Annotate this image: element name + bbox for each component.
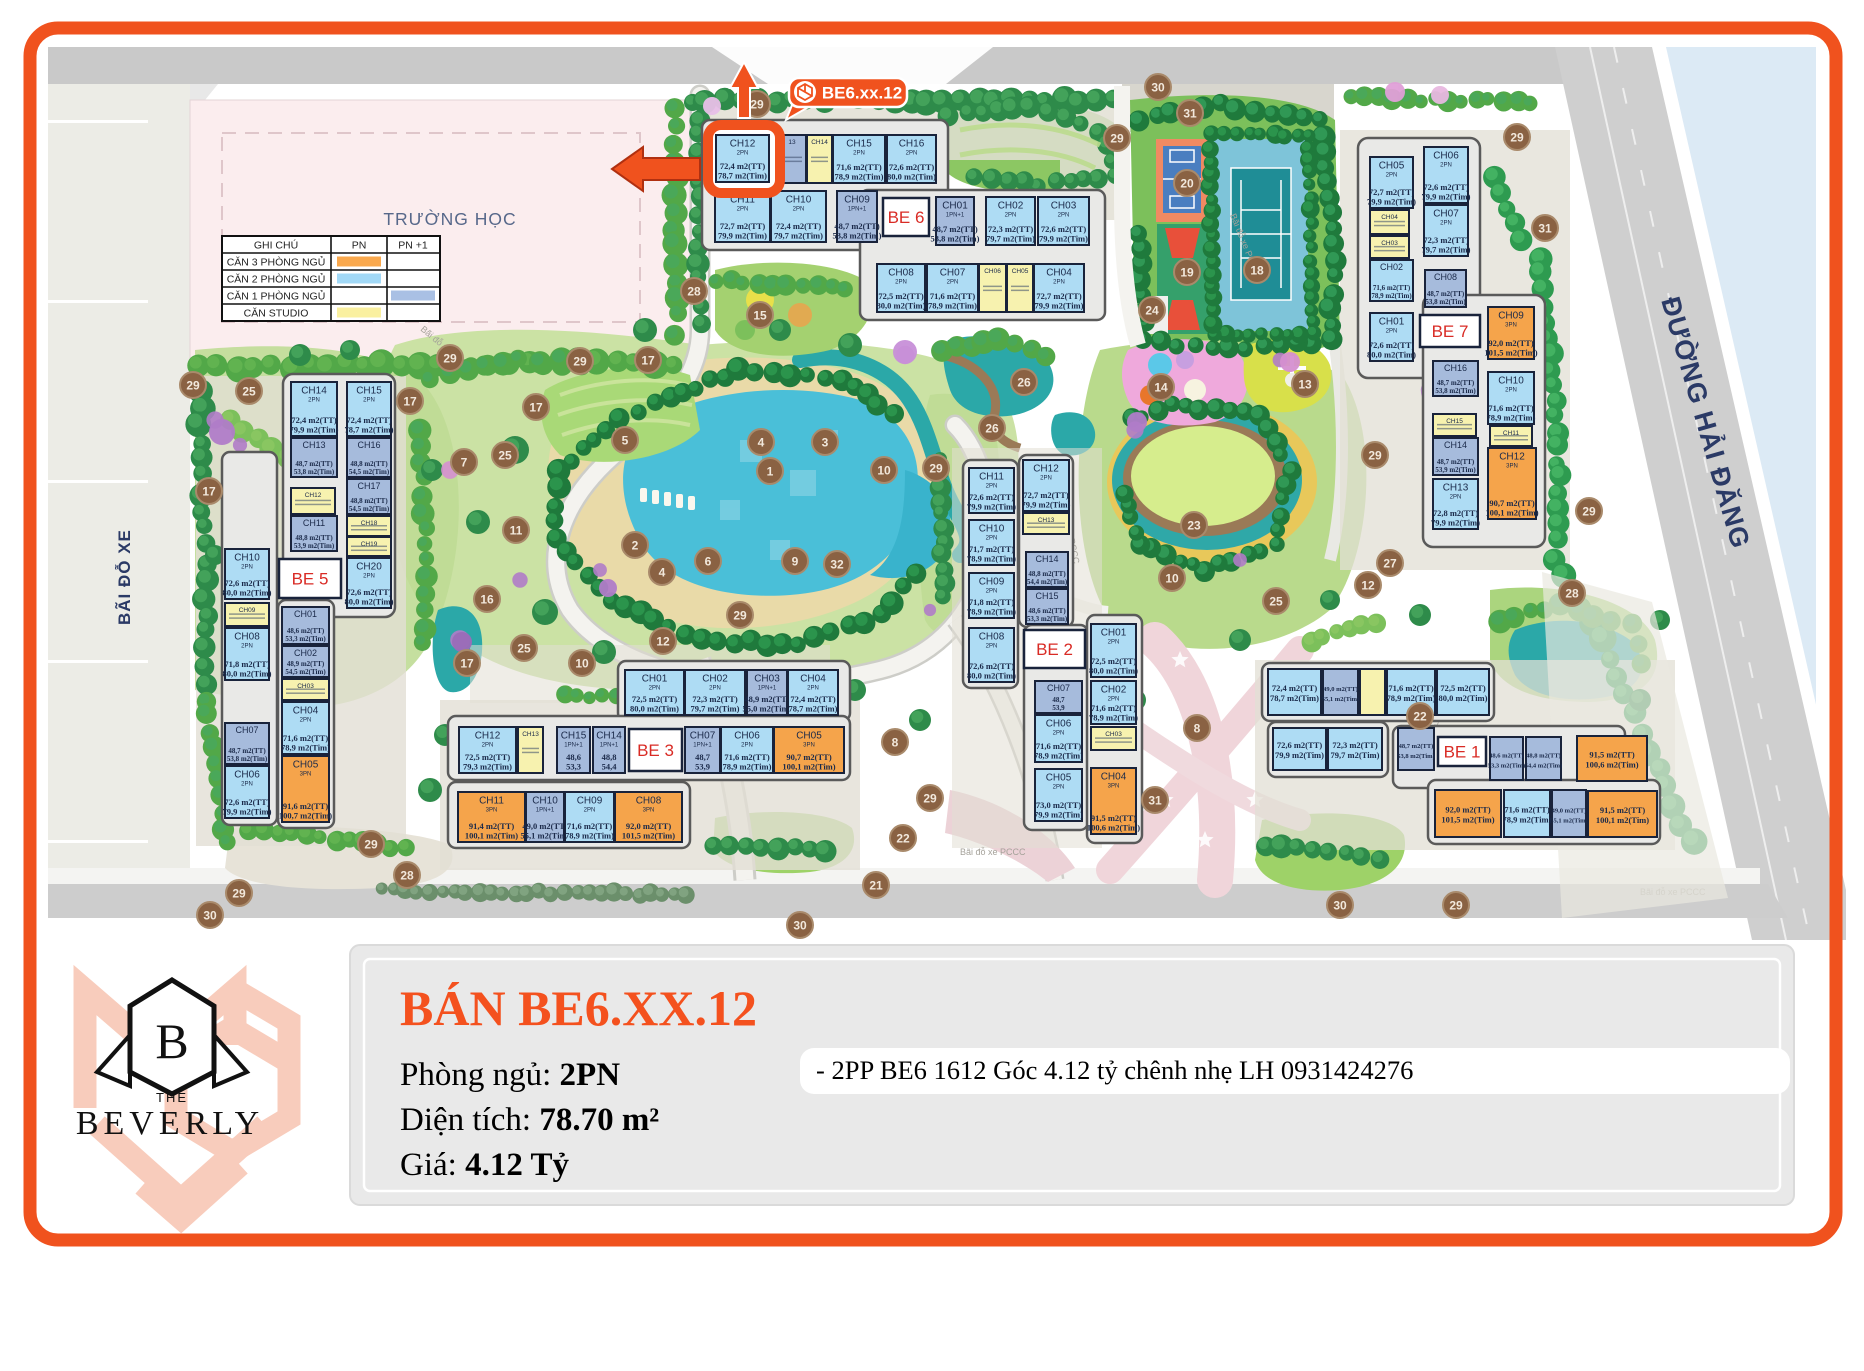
svg-text:2PN: 2PN — [1058, 213, 1070, 219]
svg-text:29: 29 — [1110, 132, 1124, 146]
svg-text:CH04: CH04 — [293, 706, 319, 717]
svg-text:2PN: 2PN — [737, 151, 749, 157]
svg-text:79,7 m2(Tim): 79,7 m2(Tim) — [1422, 245, 1471, 255]
svg-text:CH14: CH14 — [811, 139, 828, 146]
svg-text:48,7 m2(TT): 48,7 m2(TT) — [1399, 743, 1434, 750]
svg-text:80,0 m2(Tim): 80,0 m2(Tim) — [345, 597, 394, 607]
svg-text:8: 8 — [1194, 722, 1201, 736]
svg-text:78,9 m2(Tim): 78,9 m2(Tim) — [967, 554, 1016, 564]
svg-text:79,9 m2(Tim): 79,9 m2(Tim) — [1367, 197, 1416, 207]
svg-text:4: 4 — [659, 566, 666, 580]
svg-text:CH12: CH12 — [305, 492, 322, 499]
svg-text:24: 24 — [1145, 304, 1159, 318]
svg-text:48,8 m2(TT): 48,8 m2(TT) — [295, 534, 333, 542]
svg-text:17: 17 — [403, 395, 417, 409]
svg-text:CH06: CH06 — [984, 268, 1001, 275]
svg-text:CH06: CH06 — [1433, 151, 1459, 162]
svg-text:1PN+1: 1PN+1 — [848, 207, 867, 213]
svg-text:CH06: CH06 — [234, 770, 260, 781]
svg-text:9: 9 — [792, 555, 799, 569]
svg-text:2PN: 2PN — [1053, 731, 1065, 737]
svg-text:71,6 m2(TT): 71,6 m2(TT) — [567, 821, 613, 831]
svg-text:2PN: 2PN — [807, 686, 819, 692]
svg-text:CH09: CH09 — [844, 195, 870, 206]
svg-text:CH04: CH04 — [800, 674, 826, 685]
svg-text:48,8: 48,8 — [602, 752, 617, 762]
svg-text:53,3: 53,3 — [566, 762, 581, 772]
svg-text:48,6 m2(TT): 48,6 m2(TT) — [287, 627, 325, 635]
svg-text:79,9 m2(Tim): 79,9 m2(Tim) — [1275, 750, 1324, 760]
svg-text:15: 15 — [753, 309, 767, 323]
svg-text:13: 13 — [1298, 378, 1312, 392]
svg-text:80,0 m2(Tim): 80,0 m2(Tim) — [1367, 350, 1416, 360]
svg-text:78,9 m2(Tim): 78,9 m2(Tim) — [1487, 413, 1536, 423]
svg-text:CH04: CH04 — [1381, 214, 1398, 221]
svg-text:100,6 m2(Tim): 100,6 m2(Tim) — [1585, 760, 1638, 770]
svg-text:CH04: CH04 — [1101, 772, 1127, 783]
svg-text:BEVERLY: BEVERLY — [76, 1105, 264, 1142]
svg-text:91,4 m2(TT): 91,4 m2(TT) — [469, 821, 515, 831]
svg-text:90,7 m2(TT): 90,7 m2(TT) — [786, 752, 832, 762]
svg-text:CH09: CH09 — [239, 607, 256, 614]
svg-text:29: 29 — [443, 352, 457, 366]
svg-text:GHI CHÚ: GHI CHÚ — [254, 239, 298, 252]
svg-text:1PN+1: 1PN+1 — [693, 743, 712, 749]
svg-text:26: 26 — [1017, 376, 1031, 390]
svg-text:10: 10 — [877, 464, 891, 478]
svg-text:10: 10 — [1165, 572, 1179, 586]
svg-text:3PN: 3PN — [486, 808, 498, 814]
svg-text:48,8 m2(TT): 48,8 m2(TT) — [1028, 570, 1066, 578]
svg-text:72,5 m2(TT): 72,5 m2(TT) — [1091, 656, 1137, 666]
svg-text:79,3 m2(Tim): 79,3 m2(Tim) — [463, 762, 512, 772]
svg-text:2PN: 2PN — [793, 207, 805, 213]
svg-text:CH10: CH10 — [532, 796, 558, 807]
svg-text:48,6 m2(TT): 48,6 m2(TT) — [1489, 753, 1524, 760]
svg-text:100,6 m2(Tim): 100,6 m2(Tim) — [1087, 823, 1140, 833]
svg-text:100,1 m2(Tim): 100,1 m2(Tim) — [782, 762, 835, 772]
svg-text:CH03: CH03 — [1051, 201, 1077, 212]
svg-text:71,8 m2(TT): 71,8 m2(TT) — [969, 597, 1015, 607]
svg-text:71,6 m2(TT): 71,6 m2(TT) — [1388, 683, 1434, 693]
svg-text:7: 7 — [461, 456, 468, 470]
svg-text:8: 8 — [892, 736, 899, 750]
svg-text:79,9 m2(Tim): 79,9 m2(Tim) — [1431, 518, 1480, 528]
svg-text:48,7 m2(TT): 48,7 m2(TT) — [295, 460, 333, 468]
svg-text:29: 29 — [733, 609, 747, 623]
svg-text:48,8 m2(TT): 48,8 m2(TT) — [1526, 753, 1561, 760]
svg-text:17: 17 — [460, 657, 474, 671]
svg-text:48,8 m2(TT): 48,8 m2(TT) — [350, 460, 388, 468]
svg-text:3: 3 — [822, 436, 829, 450]
svg-text:2PN: 2PN — [986, 484, 998, 490]
svg-text:CH10: CH10 — [786, 195, 812, 206]
svg-text:78,7 m2(Tim): 78,7 m2(Tim) — [789, 704, 838, 714]
svg-text:29: 29 — [364, 838, 378, 852]
svg-text:29: 29 — [750, 98, 764, 112]
svg-text:100,7 m2(Tim): 100,7 m2(Tim) — [279, 811, 332, 821]
svg-text:71,6 m2(TT): 71,6 m2(TT) — [724, 752, 770, 762]
svg-text:78,9 m2(Tim): 78,9 m2(Tim) — [835, 172, 884, 182]
svg-text:CH15: CH15 — [561, 731, 587, 742]
svg-text:53,8 m2(Tim): 53,8 m2(Tim) — [833, 231, 882, 241]
svg-text:CH07: CH07 — [690, 731, 716, 742]
svg-text:48,9 m2(TT): 48,9 m2(TT) — [287, 660, 325, 668]
svg-text:2PN: 2PN — [1450, 495, 1462, 501]
svg-text:78,7 m2(Tim): 78,7 m2(Tim) — [345, 425, 394, 435]
svg-text:72,6 m2(TT): 72,6 m2(TT) — [1277, 740, 1323, 750]
svg-text:79,7 m2(Tim): 79,7 m2(Tim) — [691, 704, 740, 714]
svg-text:CH08: CH08 — [979, 632, 1005, 643]
svg-text:48,7 m2(TT): 48,7 m2(TT) — [228, 747, 266, 755]
svg-text:CH16: CH16 — [1444, 363, 1467, 373]
svg-text:CH14: CH14 — [1035, 554, 1058, 564]
svg-text:CH11: CH11 — [479, 796, 504, 807]
svg-text:3PN: 3PN — [1506, 464, 1518, 470]
svg-text:CH14: CH14 — [596, 731, 622, 742]
svg-text:2PN: 2PN — [1108, 640, 1120, 646]
svg-text:CH14: CH14 — [1444, 440, 1467, 450]
svg-text:2PN: 2PN — [853, 151, 865, 157]
svg-text:CH12: CH12 — [1033, 464, 1059, 475]
svg-text:72,4 m2(TT): 72,4 m2(TT) — [720, 161, 766, 171]
svg-text:90,7 m2(TT): 90,7 m2(TT) — [1489, 498, 1535, 508]
svg-text:6: 6 — [705, 555, 712, 569]
svg-text:CH01: CH01 — [942, 201, 968, 212]
svg-text:2PN: 2PN — [1386, 329, 1398, 335]
svg-text:Giá: 4.12 Tỷ: Giá: 4.12 Tỷ — [400, 1147, 569, 1183]
svg-text:31: 31 — [1538, 222, 1552, 236]
svg-text:79,9 m2(Tim): 79,9 m2(Tim) — [967, 502, 1016, 512]
svg-text:78,9 m2(Tim): 78,9 m2(Tim) — [1387, 693, 1436, 703]
svg-text:30: 30 — [1151, 81, 1165, 95]
svg-text:72,4 m2(TT): 72,4 m2(TT) — [776, 221, 822, 231]
svg-text:72,3 m2(TT): 72,3 m2(TT) — [1332, 740, 1378, 750]
svg-text:CH01: CH01 — [642, 674, 668, 685]
svg-text:2PN: 2PN — [649, 686, 661, 692]
svg-text:PN: PN — [352, 240, 367, 252]
svg-text:54,4 m2(Tim): 54,4 m2(Tim) — [1525, 763, 1562, 770]
svg-text:80,0 m2(Tim): 80,0 m2(Tim) — [223, 588, 272, 598]
svg-text:71,6 m2(TT): 71,6 m2(TT) — [1373, 284, 1411, 292]
svg-text:32: 32 — [830, 558, 844, 572]
svg-text:17: 17 — [641, 354, 655, 368]
svg-text:48,7 m2(TT): 48,7 m2(TT) — [932, 224, 978, 234]
svg-text:80,0 m2(Tim): 80,0 m2(Tim) — [1439, 693, 1488, 703]
svg-text:2PN: 2PN — [1053, 280, 1065, 286]
svg-text:BÃI ĐỖ XE: BÃI ĐỖ XE — [114, 529, 134, 625]
svg-text:53,8 m2(Tim): 53,8 m2(Tim) — [1435, 387, 1476, 395]
svg-text:CH05: CH05 — [796, 731, 822, 742]
svg-text:80,0 m2(Tim): 80,0 m2(Tim) — [877, 301, 926, 311]
svg-text:BE 1: BE 1 — [1444, 743, 1481, 762]
svg-text:2PN: 2PN — [1040, 476, 1052, 482]
svg-text:CH01: CH01 — [294, 609, 317, 619]
svg-text:CH15: CH15 — [846, 139, 872, 150]
svg-text:80,0 m2(Tim): 80,0 m2(Tim) — [1089, 666, 1138, 676]
svg-text:17: 17 — [202, 485, 216, 499]
svg-text:72,3 m2(TT): 72,3 m2(TT) — [988, 224, 1034, 234]
svg-text:54,4: 54,4 — [602, 762, 618, 772]
svg-text:29: 29 — [1449, 899, 1463, 913]
svg-text:CH06: CH06 — [734, 731, 760, 742]
svg-text:72,6 m2(TT): 72,6 m2(TT) — [1369, 340, 1415, 350]
svg-text:79,7 m2(Tim): 79,7 m2(Tim) — [986, 234, 1035, 244]
svg-text:27: 27 — [1383, 557, 1397, 571]
svg-text:72,8 m2(TT): 72,8 m2(TT) — [1433, 508, 1479, 518]
svg-text:1PN+1: 1PN+1 — [536, 808, 555, 814]
svg-text:71,7 m2(TT): 71,7 m2(TT) — [969, 544, 1015, 554]
svg-text:79,9 m2(Tim): 79,9 m2(Tim) — [1022, 500, 1071, 510]
svg-text:CH12: CH12 — [475, 731, 501, 742]
svg-text:BE 2: BE 2 — [1036, 640, 1073, 659]
svg-text:78,9 m2(Tim): 78,9 m2(Tim) — [1503, 815, 1552, 825]
svg-text:CH09: CH09 — [1498, 311, 1524, 322]
svg-text:CH12: CH12 — [730, 139, 756, 150]
svg-text:CH02: CH02 — [1101, 685, 1127, 696]
svg-text:53,8 m2(Tim): 53,8 m2(Tim) — [931, 234, 980, 244]
svg-text:72,7 m2(TT): 72,7 m2(TT) — [1369, 187, 1415, 197]
svg-text:PN +1: PN +1 — [398, 240, 428, 252]
svg-text:Diện tích: 78.70 m²: Diện tích: 78.70 m² — [400, 1102, 659, 1138]
svg-text:26: 26 — [985, 422, 999, 436]
svg-text:CH13: CH13 — [522, 731, 539, 738]
svg-text:71,6 m2(TT): 71,6 m2(TT) — [283, 733, 329, 743]
svg-text:71,6 m2(TT): 71,6 m2(TT) — [1488, 403, 1534, 413]
svg-text:1PN+1: 1PN+1 — [758, 686, 777, 692]
svg-text:71,6 m2(TT): 71,6 m2(TT) — [930, 291, 976, 301]
svg-text:CH10: CH10 — [979, 524, 1005, 535]
svg-text:CH15: CH15 — [356, 386, 382, 397]
svg-text:1PN+1: 1PN+1 — [564, 743, 583, 749]
svg-text:2PN: 2PN — [363, 574, 375, 580]
svg-text:78,9 m2(Tim): 78,9 m2(Tim) — [565, 831, 614, 841]
svg-text:CH08: CH08 — [234, 632, 260, 643]
svg-text:13: 13 — [788, 139, 796, 146]
svg-text:78,7 m2(Tim): 78,7 m2(Tim) — [718, 171, 767, 181]
svg-text:29: 29 — [573, 355, 587, 369]
svg-text:2PN: 2PN — [986, 589, 998, 595]
svg-text:72,7 m2(TT): 72,7 m2(TT) — [720, 221, 766, 231]
svg-text:BE 6: BE 6 — [888, 208, 925, 227]
svg-text:78,9 m2(Tim): 78,9 m2(Tim) — [1034, 751, 1083, 761]
svg-text:29: 29 — [1510, 131, 1524, 145]
svg-text:CĂN 2 PHÒNG NGỦ: CĂN 2 PHÒNG NGỦ — [227, 273, 326, 286]
svg-text:79,7 m2(Tim): 79,7 m2(Tim) — [1331, 750, 1380, 760]
svg-text:CH16: CH16 — [357, 440, 380, 450]
svg-text:CH12: CH12 — [1499, 452, 1525, 463]
svg-text:Bãi đỗ xe PCCC: Bãi đỗ xe PCCC — [960, 847, 1026, 857]
svg-text:2PN: 2PN — [300, 718, 312, 724]
svg-text:28: 28 — [400, 869, 414, 883]
svg-text:79,9 m2(Tim): 79,9 m2(Tim) — [718, 231, 767, 241]
svg-text:BE6.xx.12: BE6.xx.12 — [822, 84, 902, 103]
svg-text:16: 16 — [480, 593, 494, 607]
svg-text:2: 2 — [632, 539, 639, 553]
svg-text:2PN: 2PN — [241, 644, 253, 650]
svg-text:CH07: CH07 — [1047, 683, 1070, 693]
svg-text:72,4 m2(TT): 72,4 m2(TT) — [291, 415, 337, 425]
svg-text:72,5 m2(TT): 72,5 m2(TT) — [465, 752, 511, 762]
svg-text:29: 29 — [929, 462, 943, 476]
svg-text:5: 5 — [622, 434, 629, 448]
svg-text:53,9: 53,9 — [695, 762, 710, 772]
svg-text:CH15: CH15 — [1035, 591, 1058, 601]
svg-text:22: 22 — [896, 832, 910, 846]
svg-text:72,4 m2(TT): 72,4 m2(TT) — [346, 415, 392, 425]
svg-text:18: 18 — [1250, 264, 1264, 278]
svg-text:30: 30 — [793, 919, 807, 933]
svg-text:54,5 m2(Tim): 54,5 m2(Tim) — [285, 668, 326, 676]
svg-text:72,6 m2(TT): 72,6 m2(TT) — [969, 661, 1015, 671]
svg-text:78,9 m2(Tim): 78,9 m2(Tim) — [928, 301, 977, 311]
svg-text:25: 25 — [517, 642, 531, 656]
svg-text:3PN: 3PN — [1108, 784, 1120, 790]
svg-text:78,7 m2(Tim): 78,7 m2(Tim) — [1270, 693, 1319, 703]
svg-text:29: 29 — [923, 792, 937, 806]
svg-text:101,5 m2(Tim): 101,5 m2(Tim) — [1484, 348, 1537, 358]
svg-text:2PN: 2PN — [1386, 173, 1398, 179]
svg-text:CH02: CH02 — [998, 201, 1024, 212]
svg-text:THE: THE — [156, 1090, 188, 1105]
svg-text:72,3 m2(TT): 72,3 m2(TT) — [692, 694, 738, 704]
svg-text:72,6 m2(TT): 72,6 m2(TT) — [1423, 182, 1469, 192]
svg-text:71,6 m2(TT): 71,6 m2(TT) — [1091, 703, 1137, 713]
svg-text:30: 30 — [1333, 899, 1347, 913]
svg-text:2PN: 2PN — [241, 565, 253, 571]
svg-text:25: 25 — [242, 385, 256, 399]
svg-text:53,9 m2(Tim): 53,9 m2(Tim) — [294, 542, 335, 550]
svg-text:79,9 m2(Tim): 79,9 m2(Tim) — [1035, 301, 1084, 311]
svg-text:28: 28 — [687, 285, 701, 299]
svg-text:BE 3: BE 3 — [637, 741, 674, 760]
svg-text:12: 12 — [656, 635, 670, 649]
svg-text:CH11: CH11 — [979, 472, 1004, 483]
svg-text:12: 12 — [1361, 579, 1375, 593]
svg-text:100,1 m2(Tim): 100,1 m2(Tim) — [1485, 508, 1538, 518]
svg-text:53,3 m2(Tim): 53,3 m2(Tim) — [1027, 615, 1068, 623]
svg-text:72,4 m2(TT): 72,4 m2(TT) — [1272, 683, 1318, 693]
svg-text:79,9 m2(Tim): 79,9 m2(Tim) — [290, 425, 339, 435]
svg-text:CH16: CH16 — [899, 139, 925, 150]
svg-text:71,6 m2(TT): 71,6 m2(TT) — [836, 162, 882, 172]
svg-text:CH05: CH05 — [293, 760, 319, 771]
svg-text:53,8 m2(Tim): 53,8 m2(Tim) — [1425, 298, 1466, 306]
svg-text:14: 14 — [1154, 381, 1168, 395]
svg-text:CH09: CH09 — [979, 577, 1005, 588]
svg-text:2PN: 2PN — [986, 644, 998, 650]
svg-text:2PN: 2PN — [1053, 785, 1065, 791]
svg-text:19: 19 — [1180, 266, 1194, 280]
svg-text:CH13: CH13 — [302, 440, 325, 450]
svg-text:1PN+1: 1PN+1 — [600, 743, 619, 749]
svg-text:CH02: CH02 — [294, 648, 317, 658]
svg-text:100,1 m2(Tim): 100,1 m2(Tim) — [465, 831, 518, 841]
svg-text:53,3 m2(Tim): 53,3 m2(Tim) — [285, 635, 326, 643]
svg-text:54,5 m2(Tim): 54,5 m2(Tim) — [349, 505, 390, 513]
svg-text:72,3 m2(TT): 72,3 m2(TT) — [1423, 235, 1469, 245]
svg-text:CH01: CH01 — [1101, 628, 1127, 639]
svg-text:31: 31 — [1183, 107, 1197, 121]
svg-text:48,6: 48,6 — [566, 752, 581, 762]
svg-text:2PN: 2PN — [308, 398, 320, 404]
svg-text:49,0 m2(TT): 49,0 m2(TT) — [522, 821, 568, 831]
svg-text:71,8 m2(TT): 71,8 m2(TT) — [224, 659, 270, 669]
svg-text:3PN: 3PN — [300, 772, 312, 778]
svg-text:101,5 m2(Tim): 101,5 m2(Tim) — [622, 831, 675, 841]
svg-text:CH06: CH06 — [1046, 719, 1072, 730]
svg-text:48,9 m2(TT): 48,9 m2(TT) — [744, 694, 790, 704]
svg-text:100,1 m2(Tim): 100,1 m2(Tim) — [1596, 815, 1649, 825]
svg-text:CH01: CH01 — [1379, 317, 1405, 328]
svg-text:BE 5: BE 5 — [292, 570, 329, 589]
svg-text:2PN: 2PN — [947, 280, 959, 286]
svg-text:CH02: CH02 — [702, 674, 728, 685]
svg-text:1: 1 — [767, 465, 774, 479]
svg-text:25: 25 — [1269, 595, 1283, 609]
svg-text:48,7 m2(TT): 48,7 m2(TT) — [1437, 458, 1475, 466]
svg-text:72,6 m2(TT): 72,6 m2(TT) — [969, 492, 1015, 502]
svg-text:79,9 m2(Tim): 79,9 m2(Tim) — [1422, 192, 1471, 202]
svg-text:1PN+1: 1PN+1 — [946, 213, 965, 219]
svg-text:72,6 m2(TT): 72,6 m2(TT) — [1041, 224, 1087, 234]
svg-text:53,9: 53,9 — [1052, 704, 1065, 712]
svg-text:72,6 m2(TT): 72,6 m2(TT) — [224, 578, 270, 588]
svg-text:3PN: 3PN — [803, 743, 815, 749]
svg-text:91,5 m2(TT): 91,5 m2(TT) — [1589, 750, 1635, 760]
svg-text:23: 23 — [1187, 519, 1201, 533]
svg-text:80,0 m2(Tim): 80,0 m2(Tim) — [630, 704, 679, 714]
svg-text:3PN: 3PN — [1505, 323, 1517, 329]
svg-text:78,9 m2(Tim): 78,9 m2(Tim) — [1371, 292, 1412, 300]
svg-text:53,8 m2(Tim): 53,8 m2(Tim) — [1397, 753, 1434, 760]
svg-text:CH11: CH11 — [303, 518, 325, 528]
svg-text:80,0 m2(Tim): 80,0 m2(Tim) — [967, 671, 1016, 681]
svg-text:91,6 m2(TT): 91,6 m2(TT) — [283, 801, 329, 811]
svg-text:71,6 m2(TT): 71,6 m2(TT) — [1036, 741, 1082, 751]
svg-text:53,8 m2(Tim): 53,8 m2(Tim) — [294, 468, 335, 476]
svg-text:10: 10 — [575, 657, 589, 671]
svg-text:CH05: CH05 — [1379, 161, 1405, 172]
svg-text:78,9 m2(Tim): 78,9 m2(Tim) — [967, 607, 1016, 617]
svg-text:TRƯỜNG HỌC: TRƯỜNG HỌC — [383, 208, 516, 229]
svg-text:2PN: 2PN — [584, 808, 596, 814]
svg-text:2PN: 2PN — [241, 782, 253, 788]
svg-text:17: 17 — [529, 401, 543, 415]
svg-text:54,4 m2(Tim): 54,4 m2(Tim) — [1027, 578, 1068, 586]
svg-text:72,5 m2(TT): 72,5 m2(TT) — [632, 694, 678, 704]
svg-text:55,1 m2(Tim): 55,1 m2(Tim) — [1550, 818, 1587, 825]
svg-text:2PN: 2PN — [482, 743, 494, 749]
svg-text:CH13: CH13 — [1443, 483, 1469, 494]
svg-text:3PN: 3PN — [643, 808, 655, 814]
svg-text:72,4 m2(TT): 72,4 m2(TT) — [790, 694, 836, 704]
svg-text:2PN: 2PN — [986, 536, 998, 542]
svg-text:55,1 m2(Tim): 55,1 m2(Tim) — [1322, 696, 1359, 703]
svg-text:CĂN STUDIO: CĂN STUDIO — [244, 307, 309, 320]
svg-text:CH04: CH04 — [1046, 268, 1072, 279]
svg-text:BÁN BE6.XX.12: BÁN BE6.XX.12 — [400, 980, 757, 1036]
svg-text:79,7 m2(Tim): 79,7 m2(Tim) — [774, 231, 823, 241]
svg-text:CH02: CH02 — [1380, 262, 1403, 272]
svg-text:4: 4 — [758, 436, 765, 450]
svg-text:25: 25 — [498, 449, 512, 463]
svg-text:CH05: CH05 — [1012, 268, 1029, 275]
svg-text:79,9 m2(Tim): 79,9 m2(Tim) — [223, 807, 272, 817]
svg-text:92,0 m2(TT): 92,0 m2(TT) — [1445, 805, 1491, 815]
svg-text:CH07: CH07 — [235, 725, 258, 735]
svg-text:CH05: CH05 — [1046, 773, 1072, 784]
